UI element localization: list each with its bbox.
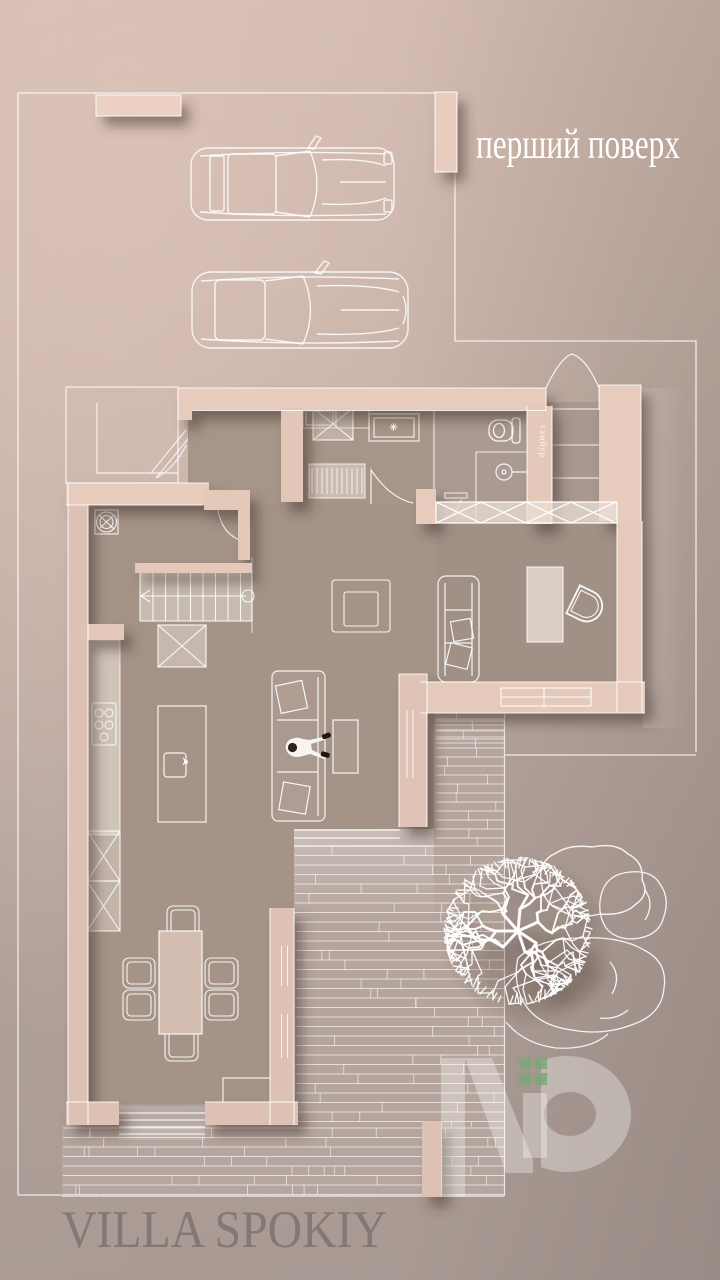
svg-text:тамбур: тамбур: [538, 425, 548, 458]
svg-text:VILLA SPOKIY: VILLA SPOKIY: [62, 1201, 387, 1259]
svg-text:перший поверх: перший поверх: [476, 122, 680, 168]
